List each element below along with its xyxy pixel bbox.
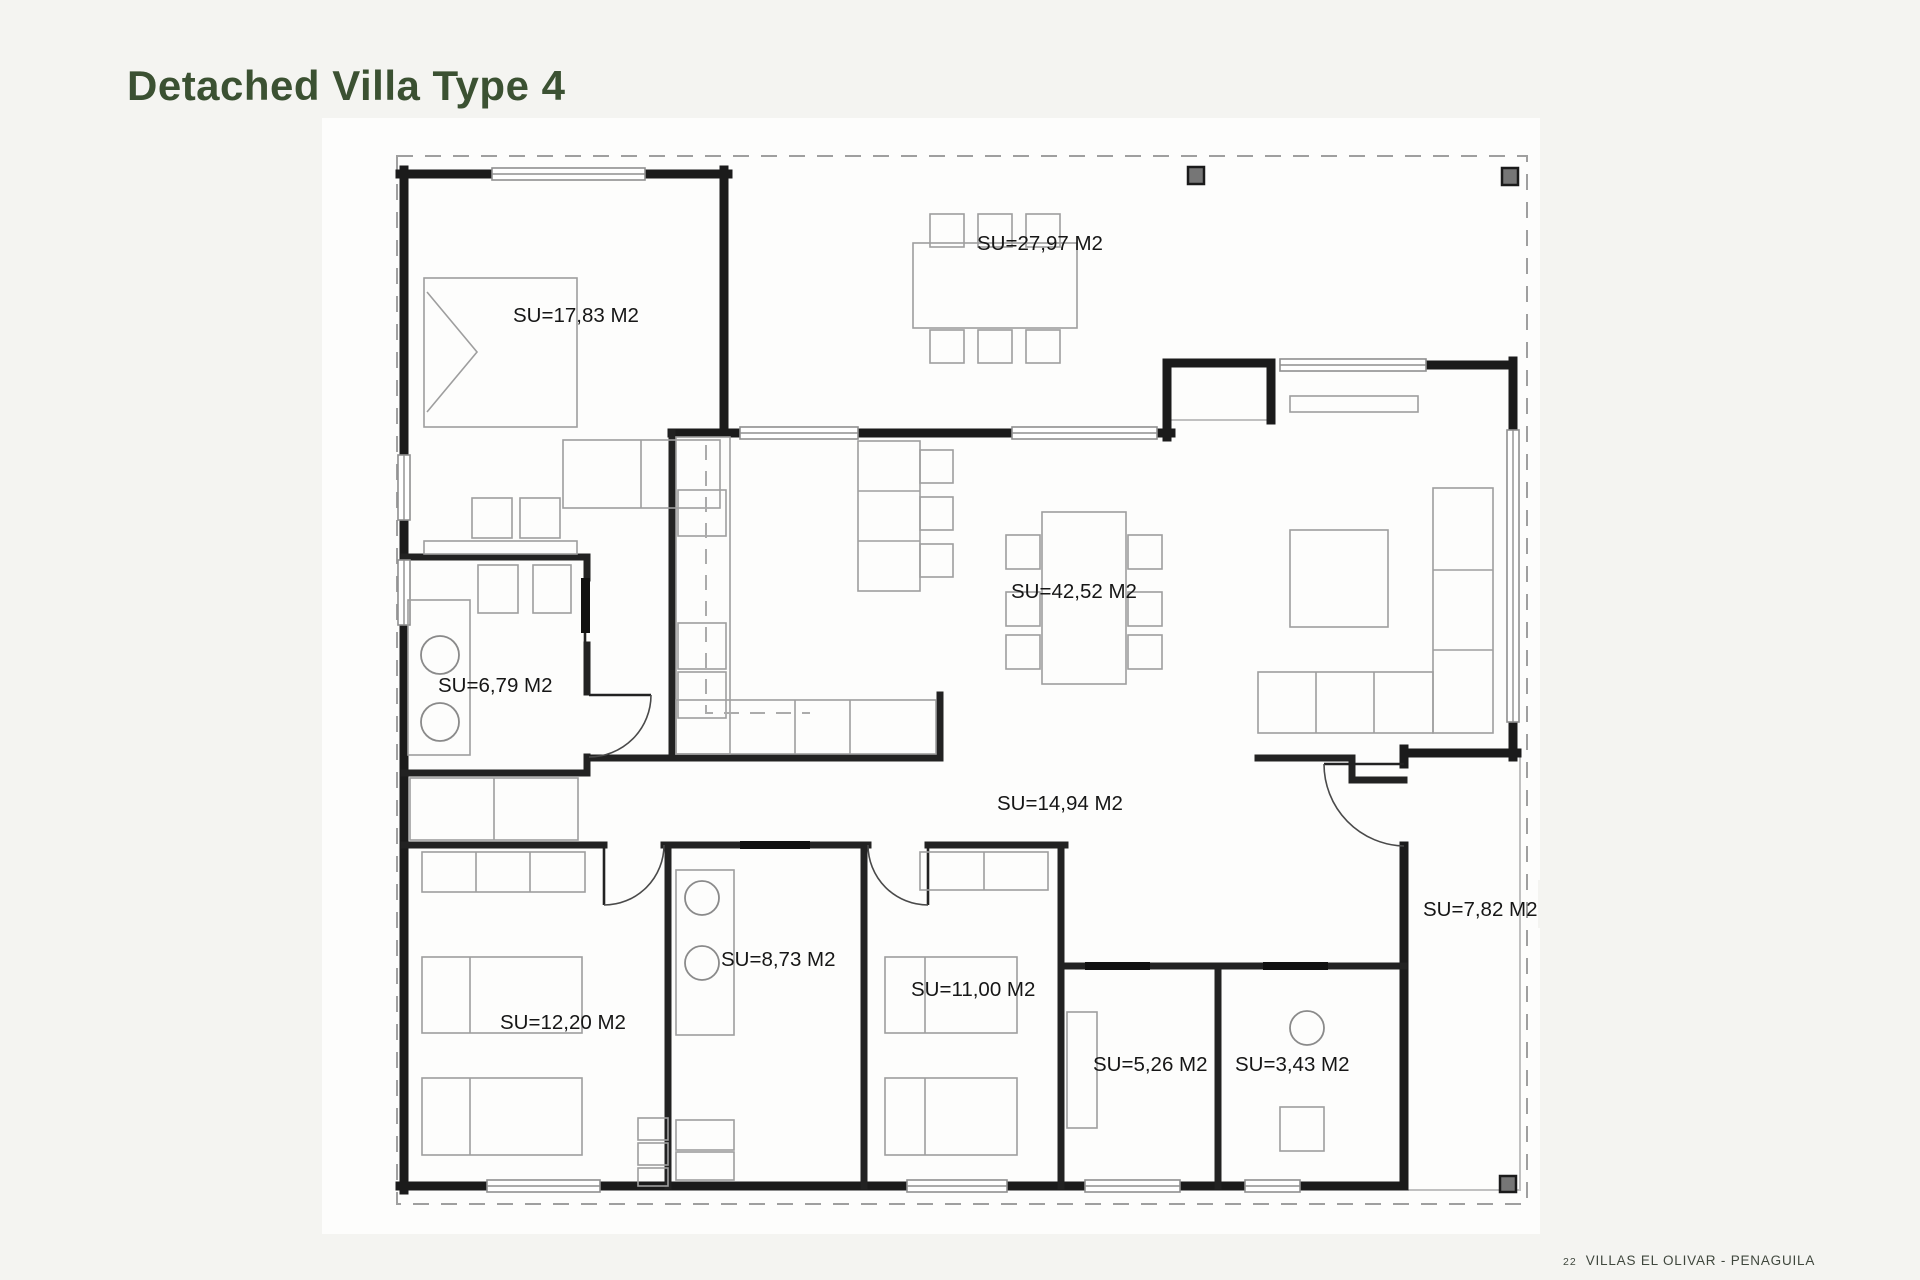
window <box>1012 427 1157 439</box>
door-storage-sliding <box>1085 962 1150 970</box>
room-label-hallway: SU=14,94 M2 <box>997 792 1123 815</box>
room-label-living-dining-kitchen: SU=42,52 M2 <box>1011 580 1137 603</box>
room-label-toilet: SU=3,43 M2 <box>1235 1053 1350 1076</box>
page-footer: 22VILLAS EL OLIVAR - PENAGUILA <box>1563 1252 1815 1270</box>
page-number: 22 <box>1563 1256 1577 1268</box>
door-bathroom-2-sliding <box>740 841 810 849</box>
column-post <box>1500 1176 1516 1192</box>
plan-edge-clip <box>1538 880 1583 928</box>
window <box>398 455 410 520</box>
room-label-storage: SU=5,26 M2 <box>1093 1053 1208 1076</box>
room-label-terrace: SU=27,97 M2 <box>977 232 1103 255</box>
room-label-bedroom-3: SU=11,00 M2 <box>911 978 1035 1001</box>
room-label-bedroom-main: SU=17,83 M2 <box>513 304 639 327</box>
project-name: VILLAS EL OLIVAR - PENAGUILA <box>1586 1253 1815 1268</box>
column-post <box>1502 168 1518 185</box>
room-label-bathroom-1: SU=6,79 M2 <box>438 674 553 697</box>
column-post <box>1188 167 1204 184</box>
room-label-bedroom-2: SU=12,20 M2 <box>500 1011 626 1034</box>
floor-plan: SU=17,83 M2 SU=27,97 M2 SU=42,52 M2 SU=6… <box>0 0 1920 1280</box>
window <box>1507 430 1519 722</box>
floor-plan-drawing: SU=17,83 M2 SU=27,97 M2 SU=42,52 M2 SU=6… <box>0 0 1920 1280</box>
window <box>907 1180 1007 1192</box>
room-label-entry-porch: SU=7,82 M2 <box>1423 898 1538 921</box>
window <box>1280 359 1426 371</box>
room-label-bathroom-2: SU=8,73 M2 <box>721 948 836 971</box>
window <box>740 427 858 439</box>
brochure-page: Detached Villa Type 4 <box>0 0 1920 1280</box>
door-toilet-sliding <box>1263 962 1328 970</box>
window <box>1245 1180 1300 1192</box>
window <box>492 168 645 180</box>
window <box>1085 1180 1180 1192</box>
window <box>487 1180 600 1192</box>
